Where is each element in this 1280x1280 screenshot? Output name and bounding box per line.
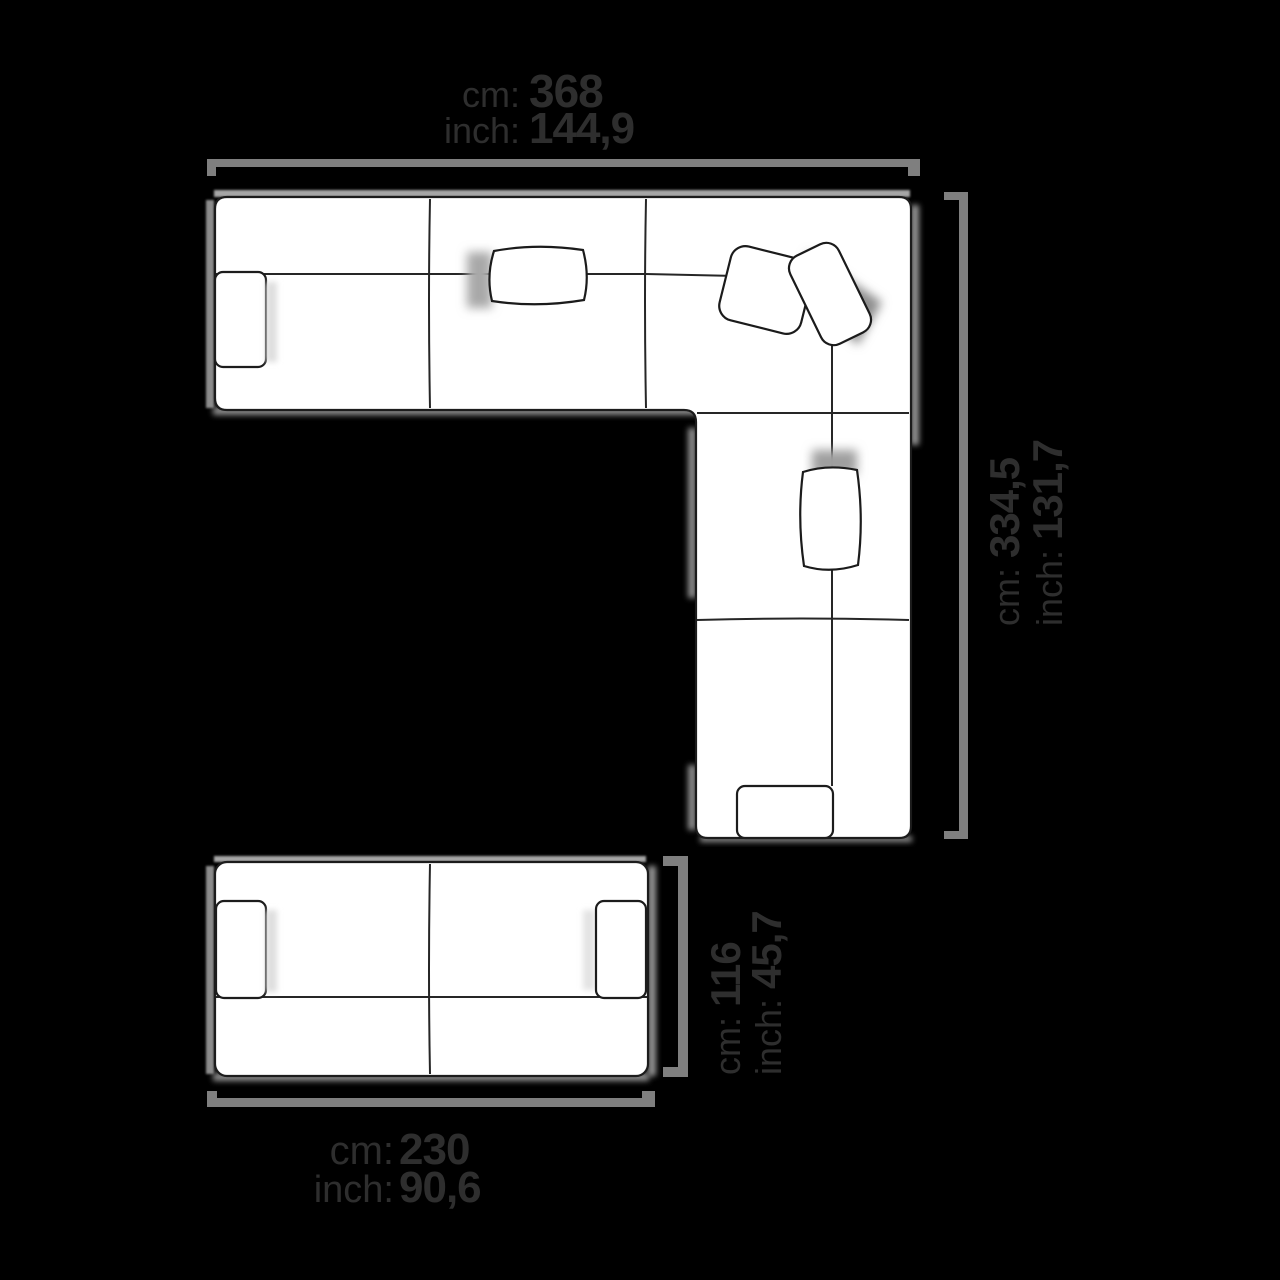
svg-text:cm: 116: cm: 116	[702, 942, 749, 1075]
svg-text:inch:: inch:	[444, 110, 520, 151]
svg-text:144,9: 144,9	[529, 104, 634, 153]
svg-text:90,6: 90,6	[399, 1163, 481, 1212]
svg-text:inch: 45,7: inch: 45,7	[743, 911, 790, 1075]
svg-text:cm:: cm:	[462, 74, 520, 115]
svg-text:cm: 334,5: cm: 334,5	[981, 457, 1028, 626]
svg-text:inch: 131,7: inch: 131,7	[1024, 440, 1071, 626]
svg-text:inch:: inch:	[314, 1169, 394, 1211]
svg-text:cm:: cm:	[330, 1129, 394, 1173]
